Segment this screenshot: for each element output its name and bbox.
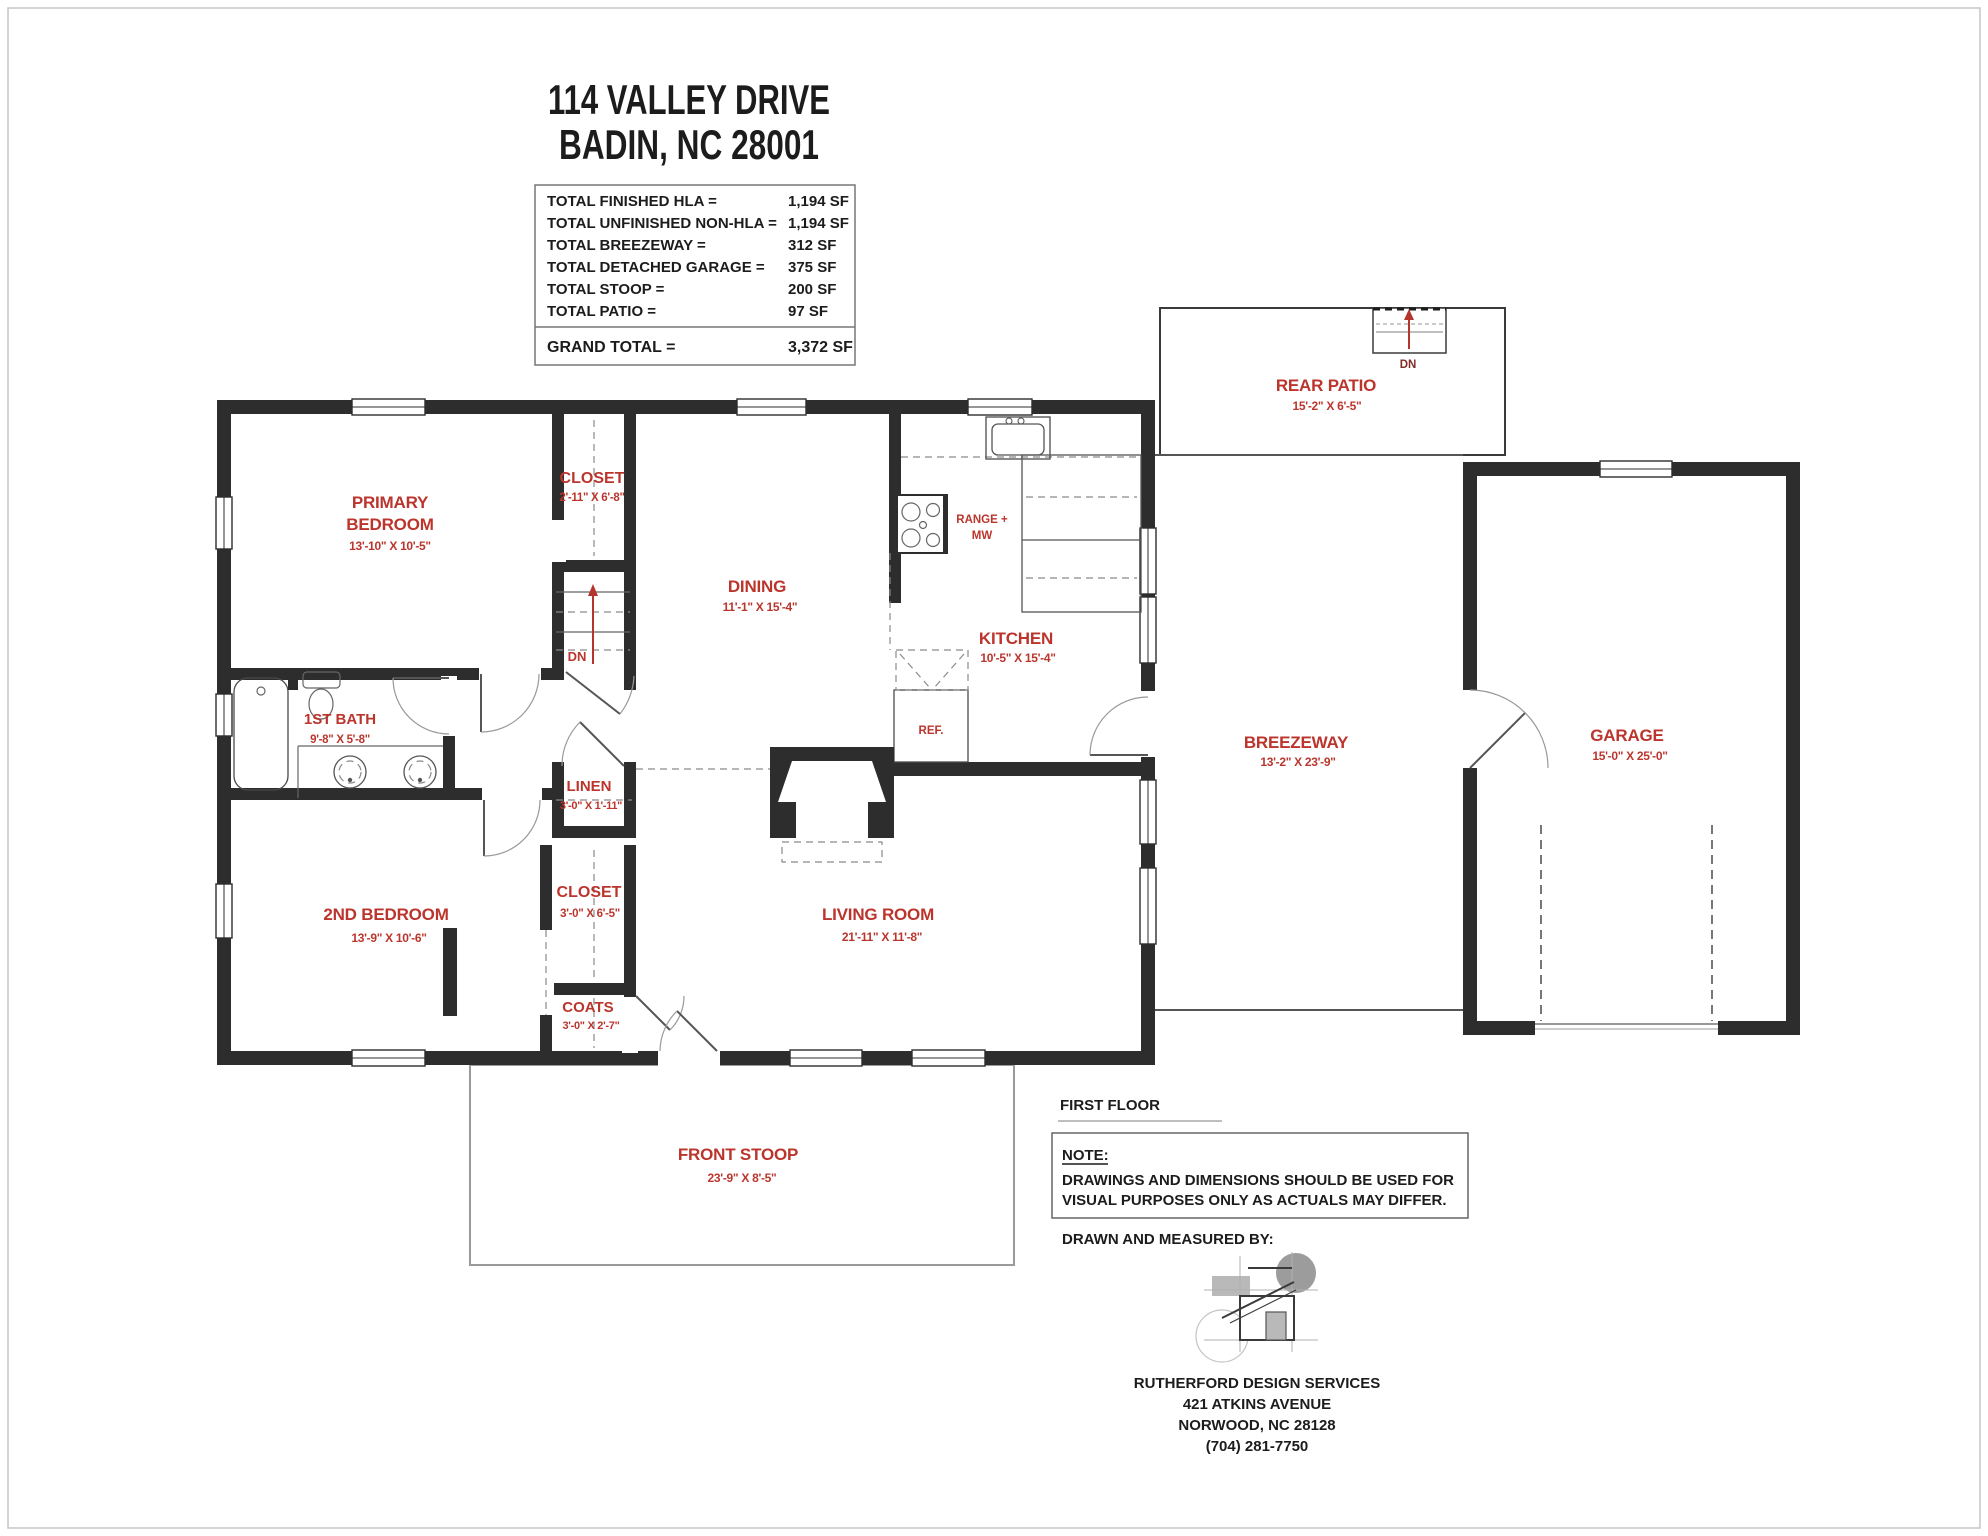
design-firm-block: RUTHERFORD DESIGN SERVICES 421 ATKINS AV… [1134,1375,1380,1455]
firm-phone: (704) 281-7750 [1206,1438,1309,1455]
room-dims: 3'-0" X 1'-11" [560,800,622,812]
table-row-label: TOTAL FINISHED HLA = [547,193,717,210]
table-row-value: 1,194 SF [788,215,849,232]
table-row-label: TOTAL DETACHED GARAGE = [547,259,765,276]
room-label: PRIMARY [352,493,429,512]
table-row-value: 97 SF [788,303,828,320]
room-label: 1ST BATH [304,711,376,728]
floor-label: FIRST FLOOR [1060,1097,1160,1114]
breezeway: BREEZEWAY 13'-2" X 23'-9" [1155,455,1463,1010]
table-row-value: 375 SF [788,259,836,276]
grand-total-value: 3,372 SF [788,339,853,356]
room-label: DINING [728,577,786,596]
table-row-label: TOTAL PATIO = [547,303,656,320]
room-label: 2ND BEDROOM [323,905,448,924]
range-label-line1: RANGE + [956,514,1008,526]
room-dims: 15'-2" X 6'-5" [1293,399,1362,413]
table-row-value: 312 SF [788,237,836,254]
table-row-value: 1,194 SF [788,193,849,210]
steps-down-label: DN [1400,359,1417,371]
room-dims: 3'-0" X 6'-5" [560,908,620,920]
firm-name: RUTHERFORD DESIGN SERVICES [1134,1375,1380,1392]
room-dims: 11'-1" X 15'-4" [723,600,798,614]
room-label: BEDROOM [346,515,433,534]
note-title: NOTE: [1062,1147,1109,1164]
room-label: REAR PATIO [1276,376,1376,395]
stairs-down-label: DN [568,649,587,664]
range-icon [897,495,947,553]
note-line: VISUAL PURPOSES ONLY AS ACTUALS MAY DIFF… [1062,1192,1447,1209]
room-dims: 23'-9" X 8'-5" [708,1171,777,1185]
front-stoop: FRONT STOOP 23'-9" X 8'-5" [470,1065,1014,1265]
room-label: GARAGE [1590,726,1663,745]
drawn-by-label: DRAWN AND MEASURED BY: [1062,1231,1274,1248]
fridge-label: REF. [919,725,944,737]
firm-city: NORWOOD, NC 28128 [1178,1417,1335,1434]
room-dims: 9'-8" X 5'-8" [310,734,370,746]
room-label: FRONT STOOP [678,1145,798,1164]
table-row-label: TOTAL UNFINISHED NON-HLA = [547,215,777,232]
room-dims: 15'-0" X 25'-0" [1592,749,1667,763]
area-table: TOTAL FINISHED HLA = 1,194 SF TOTAL UNFI… [535,185,855,365]
room-label: KITCHEN [979,629,1053,648]
page-title: 114 VALLEY DRIVE [548,76,830,123]
room-dims: 13'-9" X 10'-6" [351,931,426,945]
note-box: NOTE: DRAWINGS AND DIMENSIONS SHOULD BE … [1052,1133,1468,1218]
room-label: LINEN [567,778,612,795]
range-label-line2: MW [972,530,993,542]
grand-total-label: GRAND TOTAL = [547,339,675,356]
room-dims: 21'-11" X 11'-8" [842,930,922,944]
annotations: FIRST FLOOR NOTE: DRAWINGS AND DIMENSION… [1052,1097,1468,1455]
room-dims: 13'-10" X 10'-5" [349,539,431,553]
title-block: 114 VALLEY DRIVE BADIN, NC 28001 [548,76,830,168]
design-firm-logo [1196,1252,1318,1362]
firm-address: 421 ATKINS AVENUE [1183,1396,1331,1413]
note-line: DRAWINGS AND DIMENSIONS SHOULD BE USED F… [1062,1172,1454,1189]
table-row-value: 200 SF [788,281,836,298]
room-dims: 2'-11" X 6'-8" [559,492,624,504]
page-subtitle: BADIN, NC 28001 [559,121,819,168]
table-row-label: TOTAL STOOP = [547,281,665,298]
floor-plan-drawing: 114 VALLEY DRIVE BADIN, NC 28001 TOTAL F… [0,0,1988,1536]
room-dims: 10'-5" X 15'-4" [980,651,1055,665]
room-label: BREEZEWAY [1244,733,1349,752]
room-dims: 3'-0" X 2'-7" [562,1020,619,1032]
floorplan-page: 114 VALLEY DRIVE BADIN, NC 28001 TOTAL F… [0,0,1988,1536]
room-label: CLOSET [560,470,625,487]
room-label: COATS [562,999,613,1016]
room-label: LIVING ROOM [822,905,934,924]
room-label: CLOSET [557,884,622,901]
room-dims: 13'-2" X 23'-9" [1260,755,1335,769]
garage: GARAGE 15'-0" X 25'-0" [1461,461,1800,1037]
table-row-label: TOTAL BREEZEWAY = [547,237,706,254]
rear-patio: REAR PATIO 15'-2" X 6'-5" DN [1160,308,1505,455]
